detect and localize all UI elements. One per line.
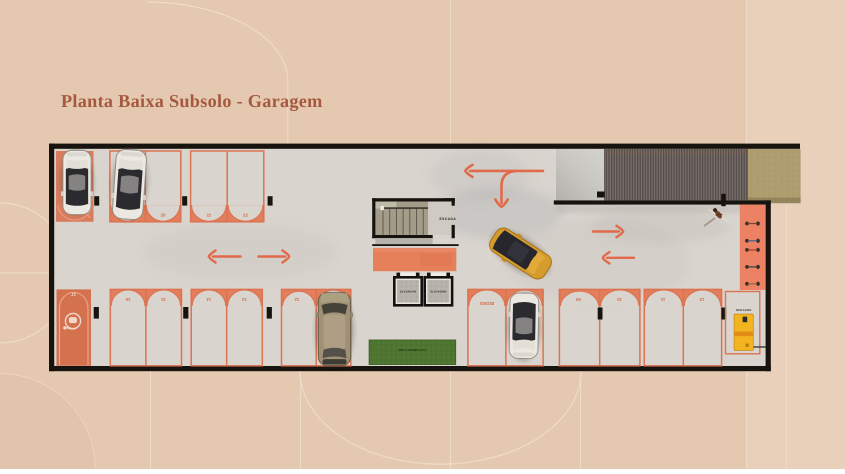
svg-text:ESCADA: ESCADA — [440, 217, 457, 221]
svg-text:14: 14 — [206, 297, 211, 302]
svg-text:Planta Baixa Subsolo - Garagem: Planta Baixa Subsolo - Garagem — [61, 91, 323, 112]
svg-text:21: 21 — [207, 212, 212, 217]
svg-text:17: 17 — [71, 292, 76, 297]
svg-text:12: 12 — [699, 297, 704, 302]
svg-text:IDOSO: IDOSO — [479, 301, 494, 306]
svg-text:20: 20 — [161, 212, 166, 217]
svg-text:10: 10 — [617, 297, 622, 302]
svg-text:GERADOR: GERADOR — [736, 308, 752, 312]
svg-text:16: 16 — [125, 297, 130, 302]
svg-text:ÁREA PERMEÁVEL: ÁREA PERMEÁVEL — [398, 348, 427, 352]
svg-text:11: 11 — [660, 297, 665, 302]
svg-text:ELEVADOR: ELEVADOR — [400, 291, 416, 294]
svg-text:12: 12 — [294, 297, 299, 302]
svg-text:13: 13 — [242, 297, 247, 302]
svg-text:15: 15 — [161, 297, 166, 302]
svg-text:22: 22 — [243, 212, 248, 217]
svg-text:09: 09 — [576, 297, 581, 302]
svg-text:ELEVADOR: ELEVADOR — [430, 291, 446, 294]
